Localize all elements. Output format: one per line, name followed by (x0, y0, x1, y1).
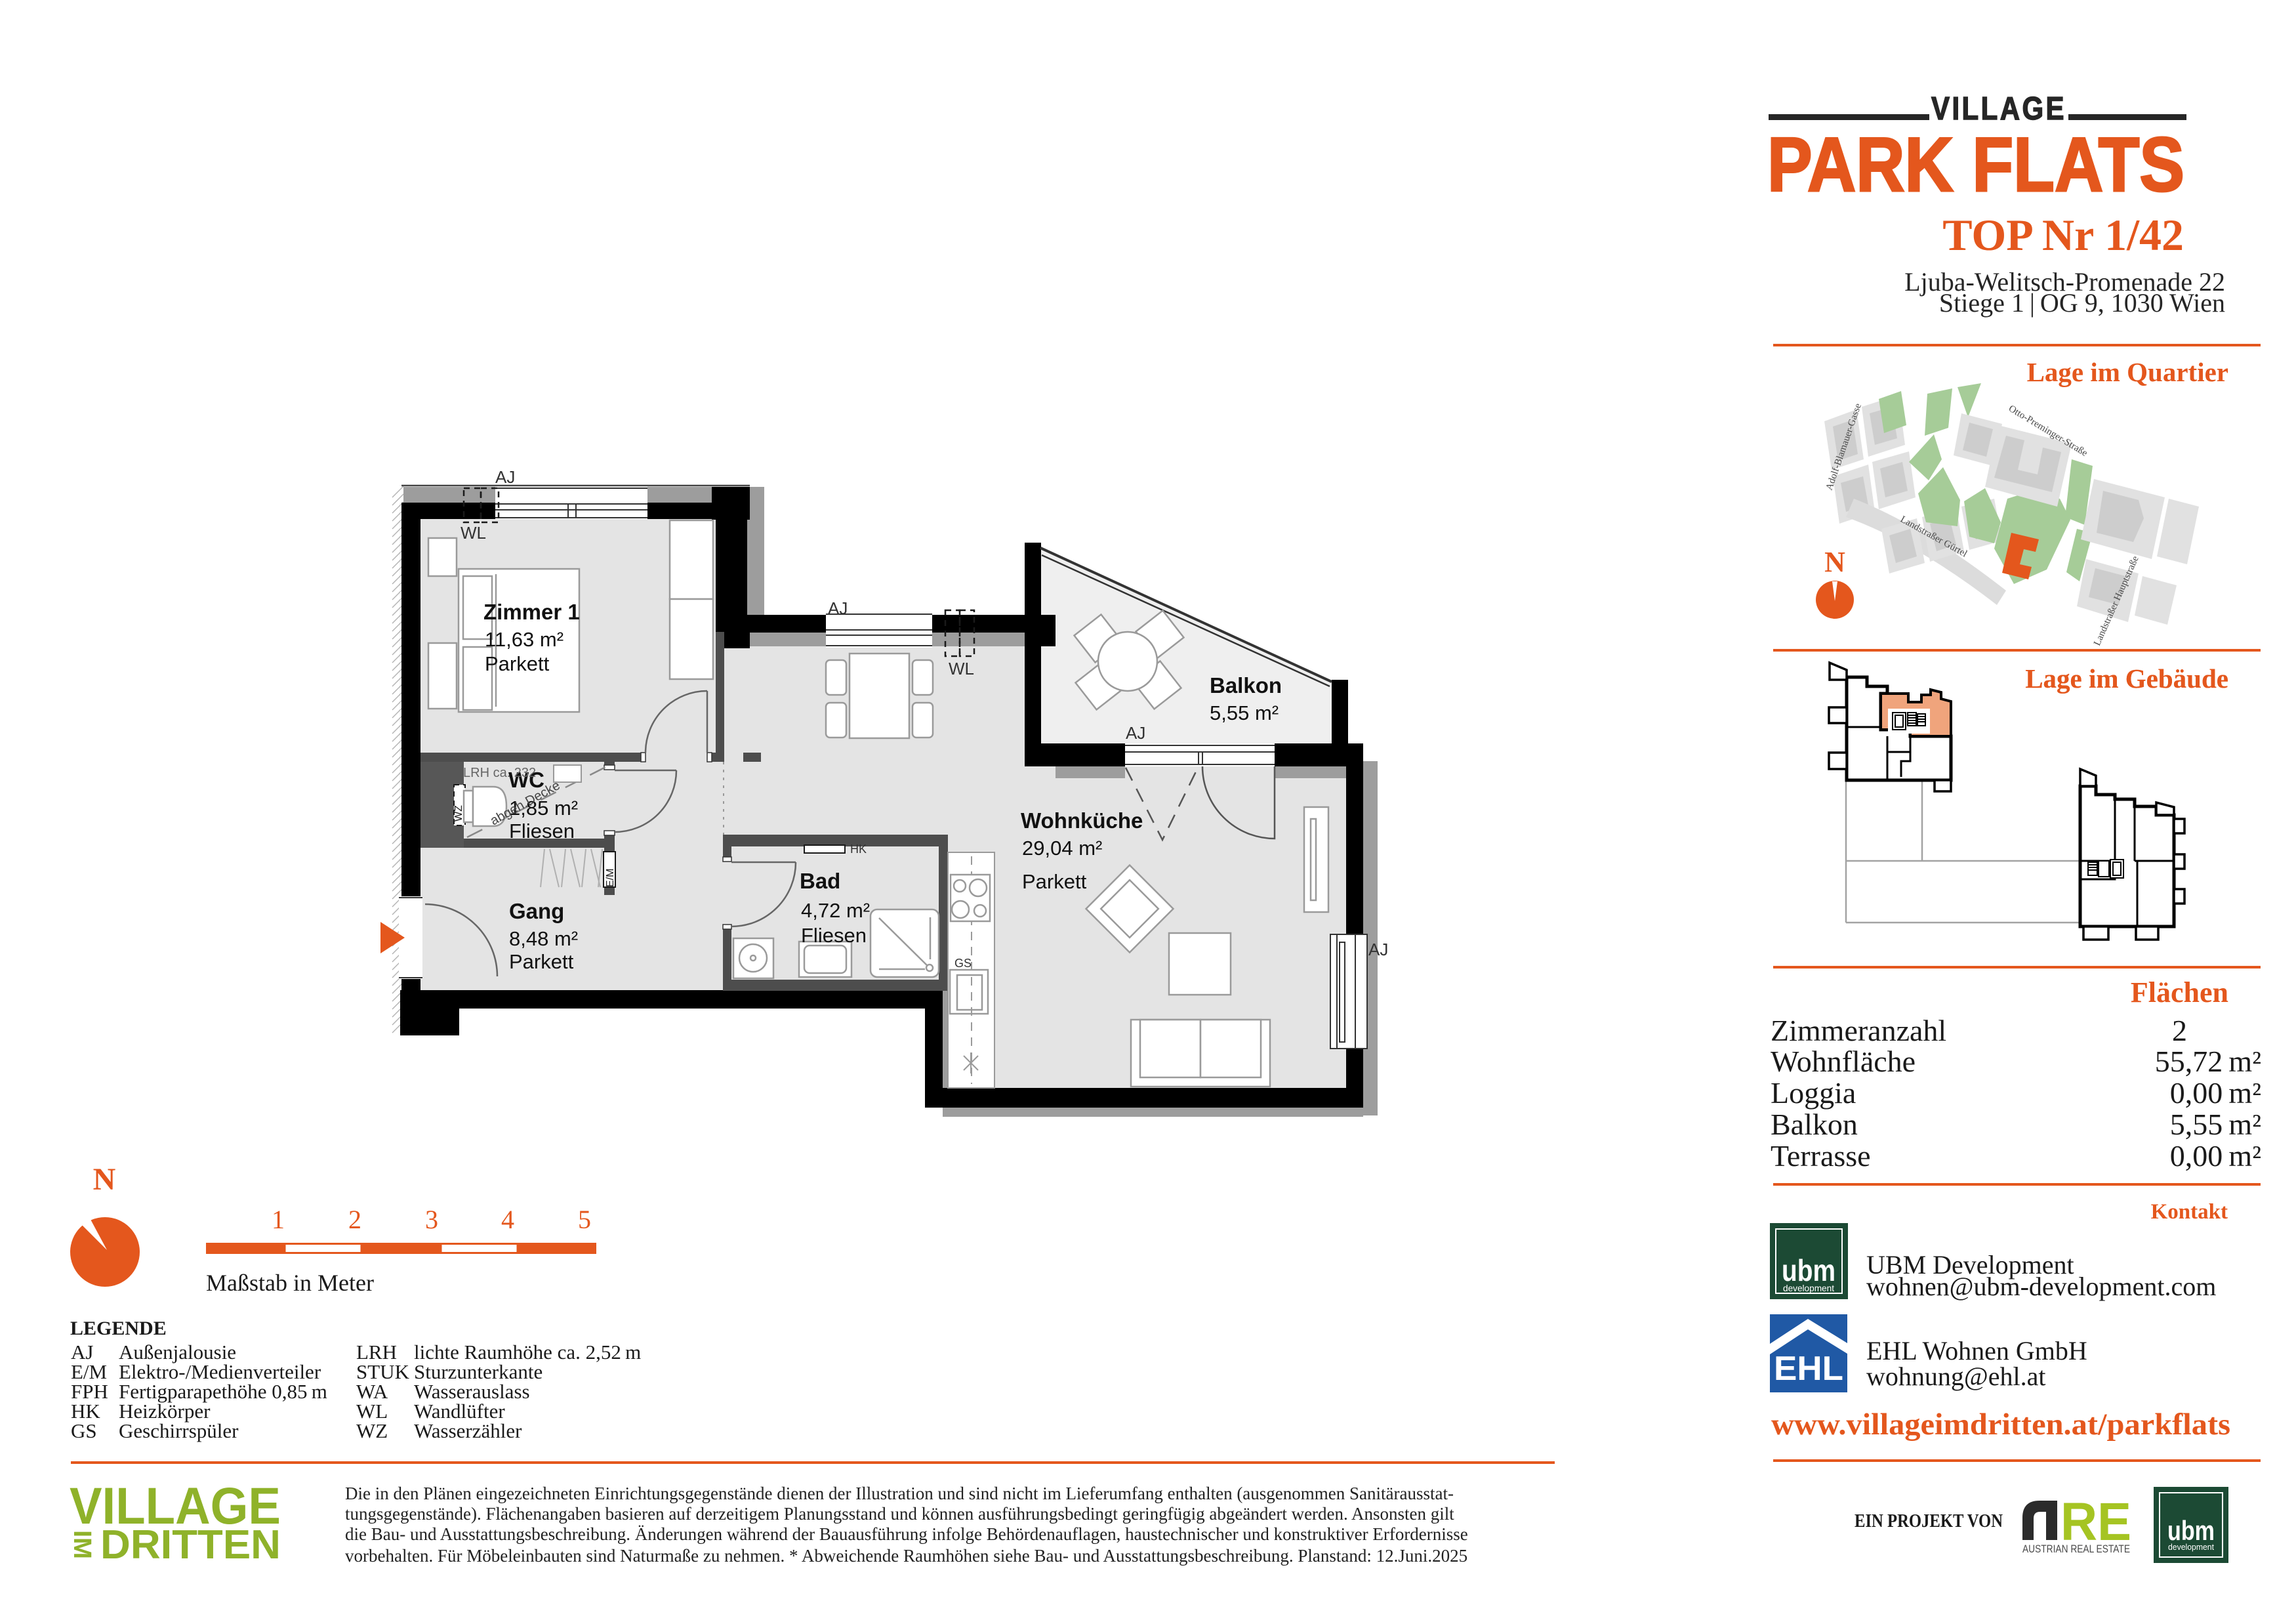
svg-text:Parkett: Parkett (485, 652, 550, 675)
svg-text:Wasserzähler: Wasserzähler (414, 1419, 522, 1442)
svg-text:Geschirrspüler: Geschirrspüler (119, 1419, 239, 1442)
svg-text:E/M: E/M (605, 869, 616, 887)
svg-text:2: 2 (2172, 1014, 2187, 1047)
svg-text:3: 3 (425, 1205, 438, 1234)
svg-text:AUSTRIAN REAL ESTATE: AUSTRIAN REAL ESTATE (2022, 1543, 2130, 1555)
svg-text:Loggia: Loggia (1771, 1076, 1856, 1110)
svg-text:AJ: AJ (1126, 723, 1145, 743)
svg-text:Parkett: Parkett (509, 950, 574, 973)
svg-text:WZ: WZ (453, 805, 464, 822)
svg-text:4: 4 (501, 1205, 514, 1234)
svg-text:HK: HK (850, 843, 867, 856)
svg-text:Fliesen: Fliesen (509, 820, 575, 843)
svg-text:Zimmer 1: Zimmer 1 (483, 600, 580, 624)
svg-text:wohnen@ubm-development.com: wohnen@ubm-development.com (1866, 1272, 2216, 1301)
svg-text:ubm: ubm (2167, 1515, 2215, 1546)
svg-text:0,00 m²: 0,00 m² (2170, 1139, 2261, 1173)
svg-text:Wohnküche: Wohnküche (1021, 808, 1143, 833)
svg-text:development: development (2168, 1542, 2214, 1552)
svg-text:AJ: AJ (495, 467, 515, 487)
svg-text:55,72 m²: 55,72 m² (2155, 1045, 2261, 1078)
svg-text:AJ: AJ (828, 598, 848, 618)
svg-text:5,55 m²: 5,55 m² (2170, 1108, 2261, 1141)
svg-text:0,00 m²: 0,00 m² (2170, 1076, 2261, 1110)
svg-text:Lage im Quartier: Lage im Quartier (2027, 357, 2228, 387)
svg-text:LEGENDE: LEGENDE (70, 1318, 167, 1339)
svg-text:Stiege 1 | OG 9, 1030 Wien: Stiege 1 | OG 9, 1030 Wien (1939, 288, 2225, 318)
svg-text:WL: WL (461, 523, 486, 543)
svg-text:GS: GS (954, 957, 972, 970)
svg-text:Flächen: Flächen (2131, 976, 2228, 1009)
svg-text:Kontakt: Kontakt (2151, 1200, 2228, 1224)
svg-text:Balkon: Balkon (1771, 1108, 1858, 1141)
svg-text:IM: IM (68, 1530, 96, 1559)
svg-text:Bad: Bad (800, 869, 840, 893)
svg-text:PARK FLATS: PARK FLATS (1767, 121, 2184, 207)
svg-text:WZ: WZ (356, 1419, 388, 1442)
svg-text:5,55 m²: 5,55 m² (1210, 701, 1279, 724)
svg-text:TOP Nr 1/42: TOP Nr 1/42 (1942, 210, 2184, 260)
svg-text:Balkon: Balkon (1210, 673, 1282, 697)
svg-text:EIN PROJEKT VON: EIN PROJEKT VON (1855, 1510, 2003, 1531)
svg-text:AJ: AJ (1368, 940, 1388, 959)
svg-text:Wohnfläche: Wohnfläche (1771, 1045, 1916, 1078)
svg-text:Lage im Gebäude: Lage im Gebäude (2025, 663, 2228, 694)
svg-text:EHL: EHL (1774, 1350, 1843, 1388)
svg-text:Die in den Plänen eingezeichne: Die in den Plänen eingezeichneten Einric… (345, 1484, 1454, 1503)
svg-text:GS: GS (71, 1419, 97, 1442)
svg-text:WL: WL (949, 659, 974, 678)
svg-text:1: 1 (272, 1205, 285, 1234)
svg-text:Gang: Gang (509, 899, 564, 923)
svg-text:Fliesen: Fliesen (801, 924, 867, 947)
svg-text:vorbehalten. Für Möbeleinbaute: vorbehalten. Für Möbeleinbauten sind Nat… (345, 1546, 1467, 1566)
svg-text:die Bau- und Ausstattungsbesch: die Bau- und Ausstattungsbeschreibung. Ä… (345, 1524, 1468, 1544)
svg-text:5: 5 (578, 1205, 591, 1234)
svg-text:29,04 m²: 29,04 m² (1022, 837, 1102, 860)
svg-text:11,63 m²: 11,63 m² (485, 628, 564, 651)
svg-text:wohnung@ehl.at: wohnung@ehl.at (1866, 1362, 2045, 1391)
svg-text:N: N (1824, 546, 1845, 578)
svg-text:www.villageimdritten.at/parkfl: www.villageimdritten.at/parkflats (1771, 1407, 2230, 1442)
svg-text:2: 2 (348, 1205, 361, 1234)
svg-text:Zimmeranzahl: Zimmeranzahl (1771, 1014, 1946, 1047)
svg-text:development: development (1783, 1283, 1834, 1293)
svg-text:tungsgegenstände). Flächenanga: tungsgegenstände). Flächenangaben basier… (345, 1504, 1454, 1524)
svg-text:Maßstab in Meter: Maßstab in Meter (206, 1270, 374, 1296)
svg-text:4,72 m²: 4,72 m² (801, 899, 870, 922)
svg-text:8,48 m²: 8,48 m² (509, 927, 578, 950)
svg-text:N: N (93, 1162, 116, 1197)
svg-text:Parkett: Parkett (1022, 870, 1087, 893)
svg-text:DRITTEN: DRITTEN (100, 1522, 281, 1568)
svg-text:LRH ca. 232: LRH ca. 232 (463, 766, 536, 780)
svg-text:Terrasse: Terrasse (1771, 1139, 1871, 1173)
